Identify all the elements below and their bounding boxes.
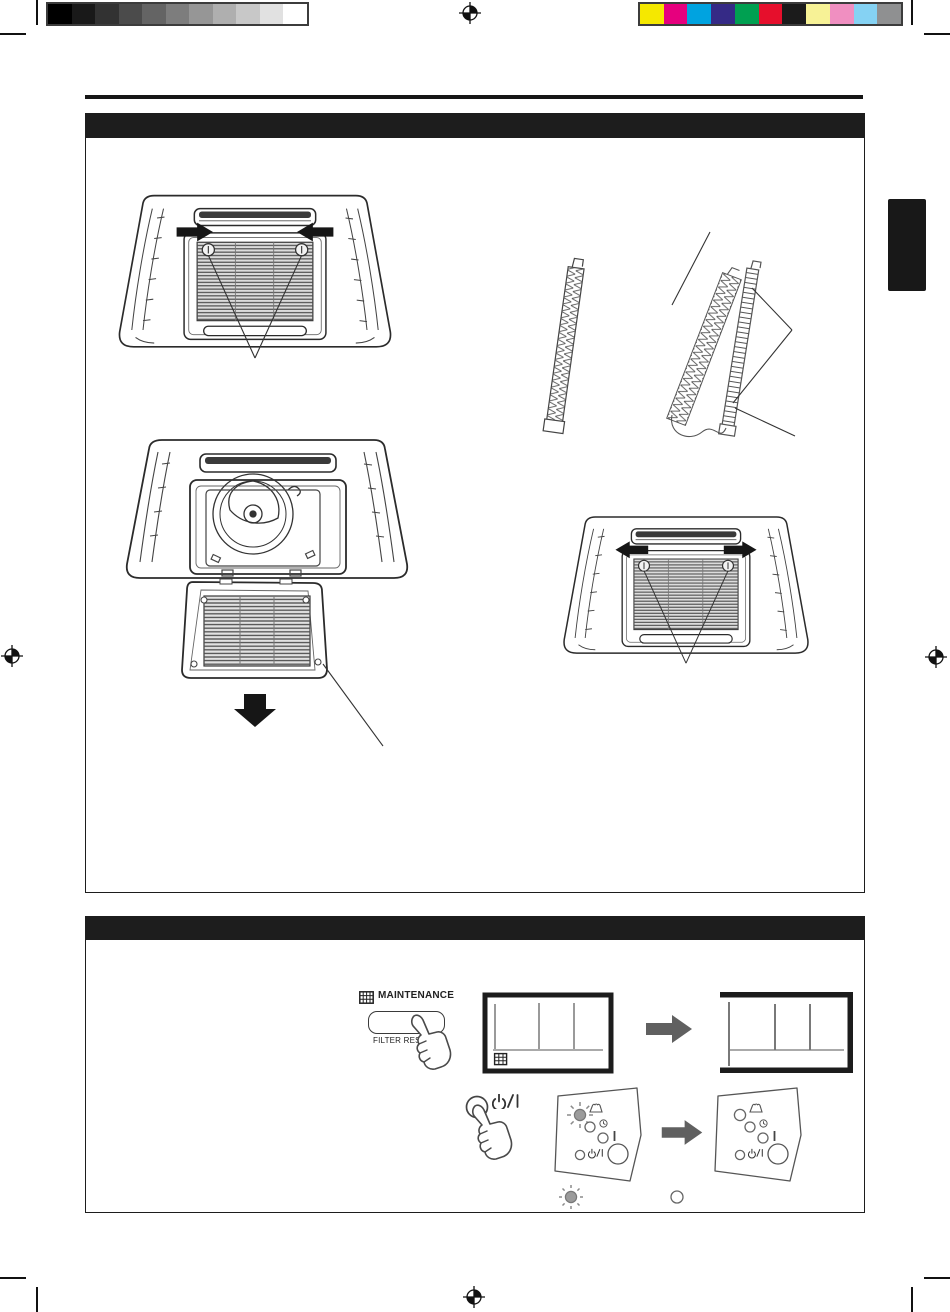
calibration-swatch [72, 4, 96, 24]
calibration-swatch [877, 4, 901, 24]
calibration-swatch [687, 4, 711, 24]
crop-tick [0, 33, 26, 35]
calibration-swatch [213, 4, 237, 24]
section-filter-removal-header [85, 113, 865, 138]
calibration-swatch [142, 4, 166, 24]
blinking-lamp-icon [558, 1184, 584, 1210]
calibration-swatch [283, 4, 307, 24]
open-grille-with-filter [182, 579, 327, 678]
diagram-cassette-close-knobs [560, 512, 812, 667]
section-divider-rule [85, 95, 863, 99]
calibration-swatch [119, 4, 143, 24]
leader-line [323, 664, 383, 746]
lamp-off-icon [666, 1186, 688, 1208]
filter-sign-grid-icon [495, 1054, 507, 1065]
page-edge-index-tab [888, 199, 926, 291]
calibration-swatch [806, 4, 830, 24]
section-filter-reset-header [85, 916, 865, 940]
filter-lamp-off [734, 1109, 745, 1120]
then-arrow-icon [660, 1119, 704, 1146]
power-lamp [575, 1150, 584, 1159]
calibration-swatch [95, 4, 119, 24]
crop-tick [911, 0, 913, 25]
crop-tick [924, 1277, 950, 1279]
grayscale-calibration-bar [46, 2, 309, 26]
timer-lamp [745, 1122, 755, 1132]
crop-tick [924, 33, 950, 35]
registration-mark [458, 1, 482, 25]
crop-tick [36, 1287, 38, 1312]
receiver-panel-before [550, 1085, 650, 1200]
calibration-swatch [830, 4, 854, 24]
air-outlet-slot [200, 454, 336, 472]
power-lamp [735, 1150, 744, 1159]
operation-lamp [598, 1133, 608, 1143]
crop-tick [0, 1277, 26, 1279]
calibration-swatch [640, 4, 664, 24]
calibration-swatch [236, 4, 260, 24]
calibration-swatch [48, 4, 72, 24]
calibration-swatch [854, 4, 878, 24]
operation-lamp [758, 1133, 768, 1143]
diagram-cassette-grille-open [112, 432, 422, 762]
filter-strip [543, 257, 587, 433]
registration-mark [0, 644, 24, 668]
pressing-hand-icon [470, 1104, 520, 1166]
crop-tick [36, 0, 38, 25]
calibration-swatch [735, 4, 759, 24]
color-calibration-bar [638, 2, 903, 26]
receiver-panel-after [710, 1083, 810, 1198]
emergency-operation-button [608, 1144, 628, 1164]
calibration-swatch [782, 4, 806, 24]
calibration-swatch [664, 4, 688, 24]
calibration-swatch [260, 4, 284, 24]
remote-display-after [710, 990, 855, 1075]
pull-down-arrow [234, 694, 276, 727]
emergency-operation-button [768, 1144, 788, 1164]
remote-display-before [482, 992, 614, 1074]
diagram-air-cleaning-filters [520, 210, 820, 540]
timer-lamp [585, 1122, 595, 1132]
manual-page: MAINTENANCE FILTER RESET [0, 0, 950, 1312]
filter-sign-grid-icon [359, 991, 374, 1004]
calibration-swatch [189, 4, 213, 24]
crop-tick [911, 1287, 913, 1312]
diagram-cassette-open-knobs [115, 190, 395, 363]
maintenance-label: MAINTENANCE [378, 990, 454, 1001]
calibration-swatch [759, 4, 783, 24]
calibration-swatch [166, 4, 190, 24]
registration-mark [924, 645, 948, 669]
calibration-swatch [711, 4, 735, 24]
registration-mark [462, 1285, 486, 1309]
pressing-hand-icon [410, 1014, 458, 1076]
then-arrow-icon [644, 1014, 694, 1044]
